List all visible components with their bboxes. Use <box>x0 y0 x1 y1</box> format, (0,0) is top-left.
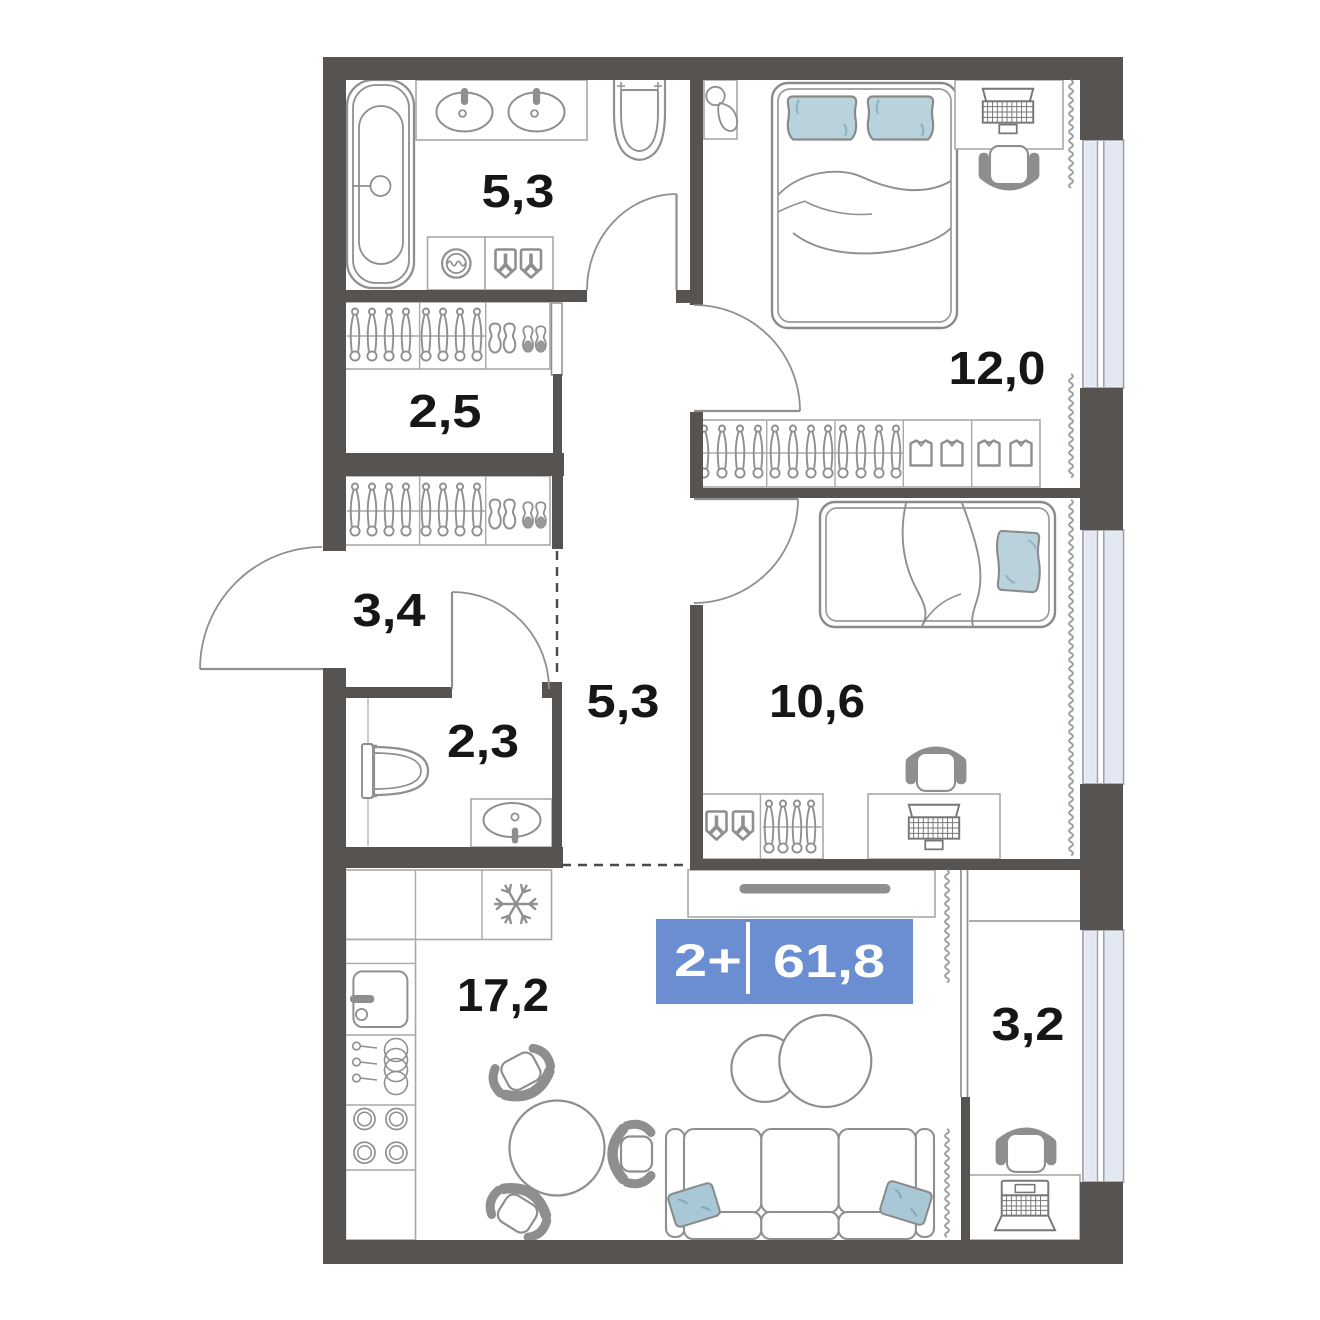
svg-text:12,0: 12,0 <box>949 342 1046 394</box>
svg-text:2+: 2+ <box>674 935 742 986</box>
svg-text:5,3: 5,3 <box>587 675 660 727</box>
svg-text:3,4: 3,4 <box>353 584 426 636</box>
svg-text:2,3: 2,3 <box>447 715 519 767</box>
svg-text:61,8: 61,8 <box>773 935 885 987</box>
svg-text:17,2: 17,2 <box>457 969 549 1021</box>
svg-text:2,5: 2,5 <box>409 385 482 437</box>
svg-text:5,3: 5,3 <box>482 165 555 217</box>
svg-text:3,2: 3,2 <box>992 998 1065 1050</box>
svg-text:10,6: 10,6 <box>769 675 865 727</box>
